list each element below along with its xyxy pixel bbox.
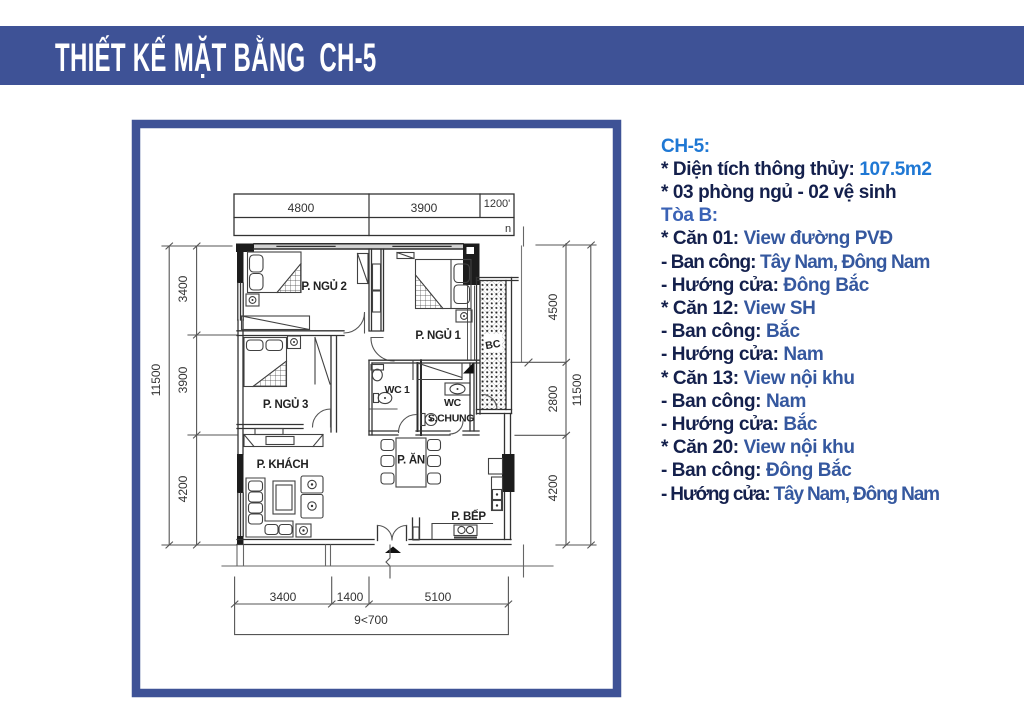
svg-text:P. NGỦ 3: P. NGỦ 3 [263, 398, 308, 411]
svg-text:P. KHÁCH: P. KHÁCH [257, 458, 309, 471]
svg-text:3900: 3900 [411, 201, 438, 215]
svg-text:3400: 3400 [176, 275, 190, 302]
svg-text:P. NGỦ 1: P. NGỦ 1 [415, 329, 461, 342]
svg-text:1400: 1400 [337, 590, 364, 604]
svg-text:n: n [505, 223, 511, 235]
svg-text:3400: 3400 [270, 590, 297, 604]
svg-text:4800: 4800 [288, 201, 315, 215]
svg-text:S.CHUNG: S.CHUNG [428, 413, 474, 425]
svg-text:4200: 4200 [546, 474, 560, 501]
svg-text:P. BẾP: P. BẾP [451, 510, 486, 523]
svg-text:P. NGỦ 2: P. NGỦ 2 [301, 280, 346, 293]
svg-text:P. ĂN: P. ĂN [397, 454, 425, 467]
svg-text:WC: WC [444, 397, 462, 409]
svg-text:WC 1: WC 1 [384, 384, 410, 396]
svg-text:5100: 5100 [425, 590, 452, 604]
svg-text:1200': 1200' [484, 198, 511, 210]
svg-text:4500: 4500 [546, 293, 560, 320]
svg-text:11500: 11500 [149, 363, 163, 396]
svg-text:9<700: 9<700 [354, 613, 388, 627]
svg-text:2800: 2800 [546, 385, 560, 412]
svg-text:3900: 3900 [176, 366, 190, 393]
svg-text:11500: 11500 [570, 373, 584, 406]
svg-text:4200: 4200 [176, 475, 190, 502]
